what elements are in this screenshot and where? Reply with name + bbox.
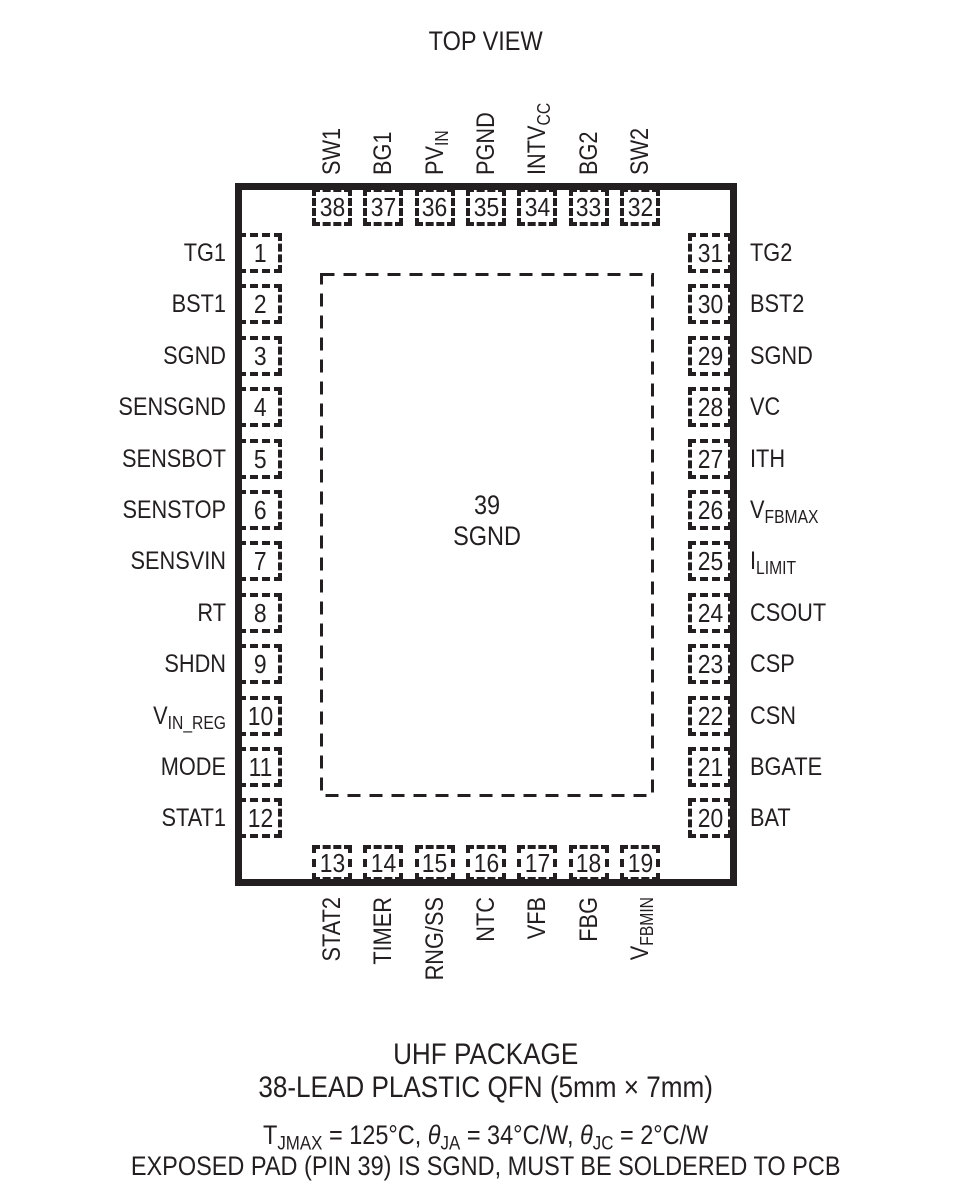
label-text: BST2: [750, 290, 804, 318]
diagram-title: TOP VIEW: [62, 25, 897, 57]
label-text: FBG: [575, 897, 603, 942]
label-text: PV: [421, 146, 449, 175]
pin-1-label: TG1: [29, 238, 226, 268]
label-text: V: [153, 702, 168, 730]
pin-9-box: 9: [238, 644, 282, 684]
exposed-pad-name: SGND: [453, 521, 521, 552]
pin-4-label: SENSGND: [29, 392, 226, 422]
footer-package-name: UHF PACKAGE: [62, 1040, 897, 1070]
label-subscript: IN: [432, 130, 452, 146]
label-text: MODE: [161, 753, 226, 781]
pin-21-number: 21: [697, 754, 722, 780]
label-text: CSN: [750, 702, 796, 730]
pin-1-box: 1: [238, 233, 282, 273]
pin-3-number: 3: [254, 343, 267, 369]
pin-4-box: 4: [238, 387, 282, 427]
pin-4-number: 4: [254, 394, 267, 420]
pin-8-label: RT: [29, 598, 226, 628]
pin-10-box: 10: [238, 696, 282, 736]
label-text: SW2: [626, 128, 654, 175]
pin-17-label: VFB: [524, 897, 550, 939]
pin-11-label: MODE: [29, 752, 226, 782]
pin-18-label: FBG: [576, 897, 602, 942]
label-subscript: FBMAX: [765, 507, 819, 527]
label-text: = 125°C,: [322, 1120, 427, 1150]
label-subscript: IN_REG: [168, 713, 226, 733]
pin-30-label: BST2: [750, 289, 804, 319]
pin-16-number: 16: [473, 850, 498, 876]
label-text: V: [626, 946, 654, 961]
pin-28-label: VC: [750, 392, 780, 422]
pin-38-number: 38: [319, 194, 344, 220]
pin-37-number: 37: [371, 194, 396, 220]
pin-16-label: NTC: [473, 897, 499, 942]
pin-8-box: 8: [238, 593, 282, 633]
pin-12-box: 12: [238, 798, 282, 838]
pin-29-label: SGND: [750, 341, 813, 371]
pin-36-box: 36: [415, 188, 455, 226]
pin-5-box: 5: [238, 439, 282, 479]
pin-3-label: SGND: [29, 341, 226, 371]
pin-14-label: TIMER: [370, 897, 396, 965]
pin-33-number: 33: [576, 194, 601, 220]
pin-35-label: PGND: [473, 112, 499, 175]
pin-9-number: 9: [254, 651, 267, 677]
pin-35-number: 35: [473, 194, 498, 220]
label-text: T: [263, 1120, 277, 1150]
pin-25-label: ILIMIT: [750, 546, 796, 583]
label-text: SENSTOP: [122, 496, 226, 524]
pin-37-box: 37: [363, 188, 403, 226]
pin-35-box: 35: [466, 188, 506, 226]
pin-30-box: 30: [688, 284, 732, 324]
label-text: BAT: [750, 804, 791, 832]
pin-12-number: 12: [247, 805, 272, 831]
pin-18-number: 18: [576, 850, 601, 876]
label-text: TG2: [750, 239, 792, 267]
pin-38-label: SW1: [319, 128, 345, 175]
pin-10-number: 10: [247, 703, 272, 729]
pin-23-box: 23: [688, 644, 732, 684]
exposed-pad-number: 39: [474, 490, 500, 521]
pin-9-label: SHDN: [29, 649, 226, 679]
label-text: SENSVIN: [131, 547, 226, 575]
pin-2-label: BST1: [29, 289, 226, 319]
pin-34-label: INTVCC: [524, 103, 557, 175]
label-text: θ: [580, 1120, 593, 1150]
pin-28-number: 28: [697, 394, 722, 420]
pin-19-number: 19: [627, 850, 652, 876]
footer-exposed-pad-note: EXPOSED PAD (PIN 39) IS SGND, MUST BE SO…: [62, 1151, 897, 1181]
pin-17-number: 17: [525, 850, 550, 876]
label-text: SHDN: [164, 650, 226, 678]
pin-7-label: SENSVIN: [29, 546, 226, 576]
pin-24-box: 24: [688, 593, 732, 633]
label-text: ITH: [750, 445, 785, 473]
label-text: BG1: [369, 131, 397, 175]
label-text: VC: [750, 393, 780, 421]
label-subscript: LIMIT: [756, 558, 796, 578]
pin-36-number: 36: [422, 194, 447, 220]
label-text: RNG/SS: [421, 897, 449, 980]
footer-package-desc: 38-LEAD PLASTIC QFN (5mm × 7mm): [62, 1073, 897, 1103]
pin-14-number: 14: [371, 850, 396, 876]
label-text: SGND: [750, 342, 813, 370]
pin-20-box: 20: [688, 798, 732, 838]
pin-5-number: 5: [254, 446, 267, 472]
label-text: STAT2: [318, 897, 346, 961]
pin-26-label: VFBMAX: [750, 495, 818, 532]
pin-15-box: 15: [415, 845, 455, 881]
pin-25-box: 25: [688, 541, 732, 581]
pin-32-label: SW2: [627, 128, 653, 175]
pin-27-box: 27: [688, 439, 732, 479]
pin-30-number: 30: [697, 291, 722, 317]
pin-14-box: 14: [363, 845, 403, 881]
pin-28-box: 28: [688, 387, 732, 427]
pin-21-box: 21: [688, 747, 732, 787]
label-text: CSP: [750, 650, 795, 678]
pin-23-label: CSP: [750, 649, 795, 679]
pin-29-box: 29: [688, 336, 732, 376]
label-text: = 34°C/W,: [460, 1120, 580, 1150]
pin-21-label: BGATE: [750, 752, 822, 782]
label-text: = 2°C/W: [613, 1120, 708, 1150]
pin-18-box: 18: [569, 845, 609, 881]
pin-37-label: BG1: [370, 131, 396, 175]
pin-13-box: 13: [312, 845, 352, 881]
pin-32-box: 32: [620, 188, 660, 226]
label-text: TIMER: [369, 897, 397, 965]
pin-5-label: SENSBOT: [29, 444, 226, 474]
pin-22-box: 22: [688, 696, 732, 736]
pin-3-box: 3: [238, 336, 282, 376]
pin-16-box: 16: [466, 845, 506, 881]
pin-34-number: 34: [525, 194, 550, 220]
pin-23-number: 23: [697, 651, 722, 677]
pin-12-label: STAT1: [29, 803, 226, 833]
pin-36-label: PVIN: [422, 130, 455, 175]
label-text: PGND: [472, 112, 500, 175]
pin-22-number: 22: [697, 703, 722, 729]
label-text: BGATE: [750, 753, 822, 781]
pin-20-label: BAT: [750, 803, 791, 833]
pin-7-box: 7: [238, 541, 282, 581]
pin-29-number: 29: [697, 343, 722, 369]
pin-2-number: 2: [254, 291, 267, 317]
label-text: VFB: [523, 897, 551, 939]
pin-32-number: 32: [627, 194, 652, 220]
pin-6-label: SENSTOP: [29, 495, 226, 525]
label-text: SGND: [163, 342, 226, 370]
pin-27-label: ITH: [750, 444, 785, 474]
pin-1-number: 1: [254, 240, 267, 266]
pin-31-box: 31: [688, 233, 732, 273]
label-text: INTV: [523, 125, 551, 175]
pin-15-label: RNG/SS: [422, 897, 448, 980]
pin-20-number: 20: [697, 805, 722, 831]
pin-26-number: 26: [697, 497, 722, 523]
pin-34-box: 34: [517, 188, 557, 226]
label-text: SENSGND: [118, 393, 226, 421]
label-text: RT: [197, 599, 226, 627]
label-text: BST1: [172, 290, 226, 318]
label-text: V: [750, 496, 765, 524]
pin-15-number: 15: [422, 850, 447, 876]
pin-19-box: 19: [620, 845, 660, 881]
pin-31-number: 31: [697, 240, 722, 266]
pin-17-box: 17: [517, 845, 557, 881]
exposed-pad-label-group: 39 SGND: [320, 273, 654, 797]
label-text: NTC: [472, 897, 500, 942]
pin-24-number: 24: [697, 600, 722, 626]
pin-33-box: 33: [569, 188, 609, 226]
pin-19-label: VFBMIN: [627, 897, 660, 960]
pin-8-number: 8: [254, 600, 267, 626]
pin-13-label: STAT2: [319, 897, 345, 961]
pin-11-number: 11: [248, 754, 272, 780]
label-subscript: CC: [534, 103, 554, 126]
label-text: STAT1: [162, 804, 226, 832]
label-text: SW1: [318, 128, 346, 175]
pin-25-number: 25: [697, 548, 722, 574]
pin-6-box: 6: [238, 490, 282, 530]
label-text: θ: [428, 1120, 441, 1150]
pin-24-label: CSOUT: [750, 598, 826, 628]
label-text: TG1: [184, 239, 226, 267]
pin-31-label: TG2: [750, 238, 792, 268]
pin-22-label: CSN: [750, 701, 796, 731]
label-text: CSOUT: [750, 599, 826, 627]
pin-38-box: 38: [312, 188, 352, 226]
pin-27-number: 27: [697, 446, 722, 472]
pin-26-box: 26: [688, 490, 732, 530]
pin-11-box: 11: [238, 747, 282, 787]
label-subscript: FBMIN: [637, 897, 657, 946]
label-text: BG2: [575, 131, 603, 175]
pin-7-number: 7: [254, 548, 267, 574]
pinout-diagram: TOP VIEW 39 SGND 38SW137BG136PVIN35PGND3…: [0, 0, 960, 1195]
pin-13-number: 13: [319, 850, 344, 876]
pin-2-box: 2: [238, 284, 282, 324]
label-text: SENSBOT: [122, 445, 226, 473]
pin-33-label: BG2: [576, 131, 602, 175]
pin-10-label: VIN_REG: [29, 701, 226, 738]
pin-6-number: 6: [254, 497, 267, 523]
